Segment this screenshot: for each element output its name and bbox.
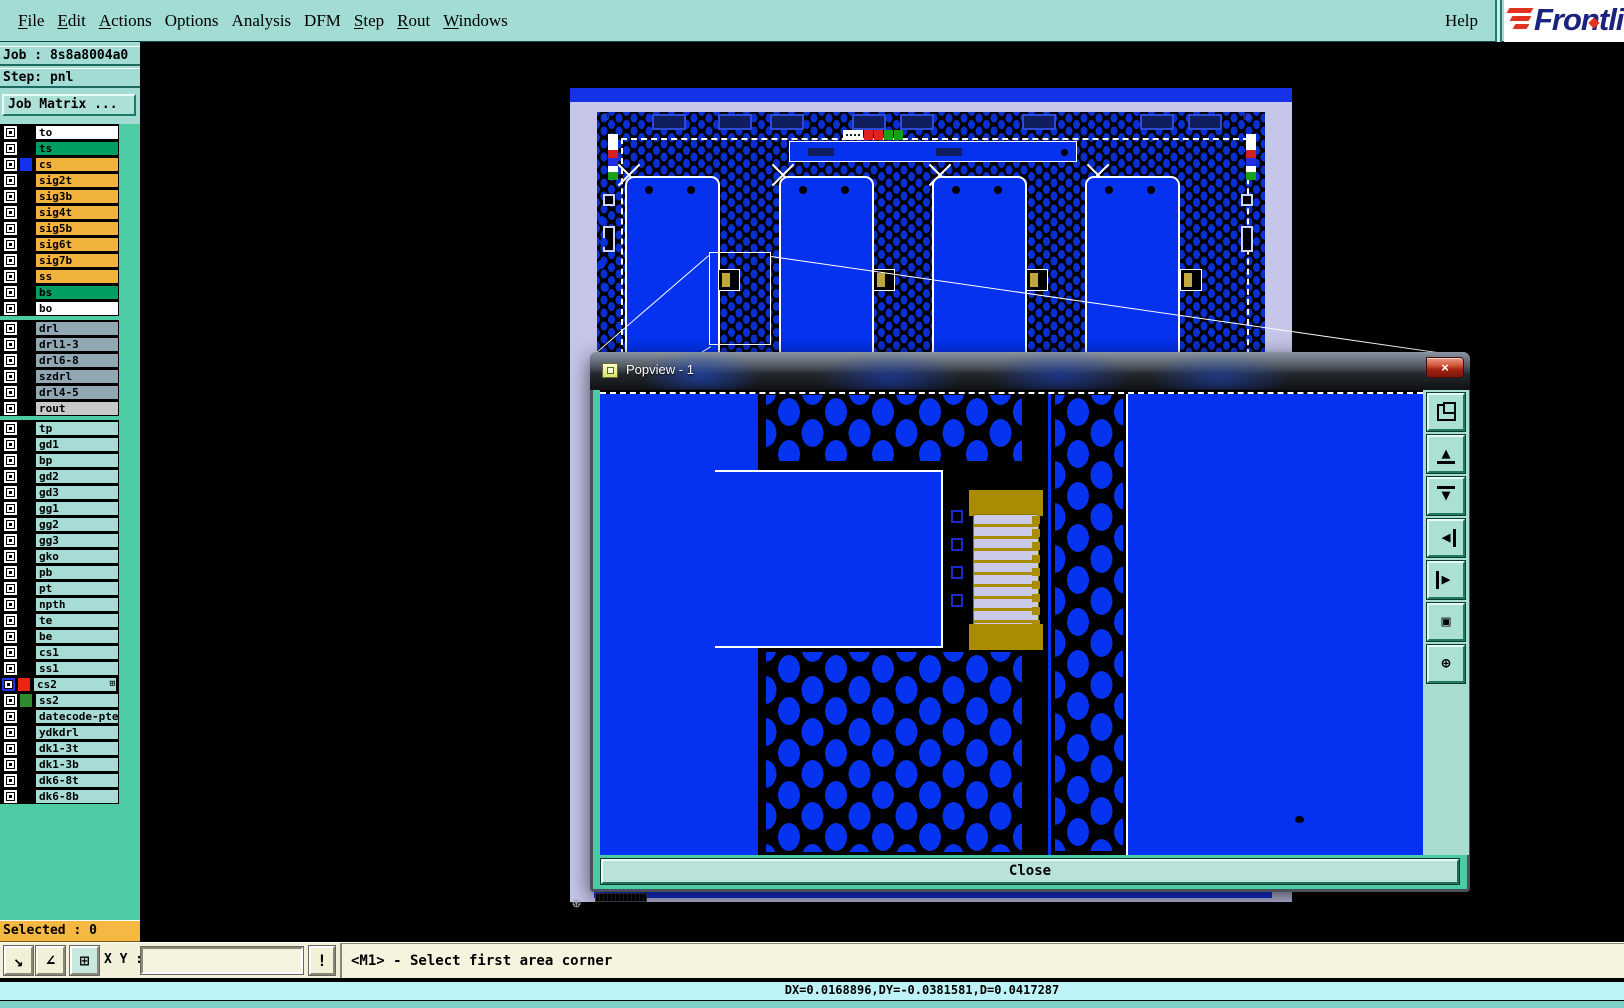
layer-checkbox-drl1-3[interactable] (4, 338, 17, 351)
layer-row-szdrl[interactable]: szdrl (0, 368, 119, 384)
bottom-edge (0, 1000, 1624, 1008)
layer-row-drl[interactable]: drl (0, 320, 119, 336)
layer-name-drl1-3[interactable]: drl1-3 (35, 337, 119, 352)
layer-name-tp[interactable]: tp (35, 421, 119, 436)
edge-mark (603, 194, 615, 206)
layer-checkbox-pt[interactable] (4, 582, 17, 595)
layer-checkbox-gd1[interactable] (4, 438, 17, 451)
layer-row-cs2[interactable]: cs2⊞ (0, 676, 119, 692)
close-icon[interactable]: × (1426, 357, 1464, 378)
popview-title: Popview - 1 (626, 362, 694, 377)
selected-count: Selected : 0 (0, 920, 140, 942)
edge-mark (1241, 194, 1253, 206)
layer-name-gg2[interactable]: gg2 (35, 517, 119, 532)
layer-row-sig5b[interactable]: sig5b (0, 220, 119, 236)
popview-footer: Close (593, 855, 1467, 889)
layer-checkbox-ts[interactable] (4, 142, 17, 155)
stray-feature (601, 283, 609, 292)
layer-name-pb[interactable]: pb (35, 565, 119, 580)
layer-name-drl6-8[interactable]: drl6-8 (35, 353, 119, 368)
layer-checkbox-te[interactable] (4, 614, 17, 627)
panel-fiducial-box (718, 114, 752, 130)
popview-dialog: Popview - 1 × ▲▼◀▶▣⊕ Close (590, 352, 1470, 892)
layer-row-npth[interactable]: npth (0, 596, 119, 612)
panel-fiducial-box (852, 114, 886, 130)
layer-checkbox-cs1[interactable] (4, 646, 17, 659)
layer-name-dk1-3b[interactable]: dk1-3b (35, 757, 119, 772)
layer-checkbox-drl[interactable] (4, 322, 17, 335)
job-label: Job : 8s8a8004a0 (0, 46, 140, 66)
layer-name-gg3[interactable]: gg3 (35, 533, 119, 548)
layer-row-bs[interactable]: bs (0, 284, 119, 300)
layer-row-drl4-5[interactable]: drl4-5 (0, 384, 119, 400)
layer-row-drl6-8[interactable]: drl6-8 (0, 352, 119, 368)
tab-outline (715, 646, 943, 648)
layer-row-cs1[interactable]: cs1 (0, 644, 119, 660)
layer-checkbox-bp[interactable] (4, 454, 17, 467)
pan-center-icon[interactable]: ⊕ (1427, 645, 1465, 683)
layer-name-gd3[interactable]: gd3 (35, 485, 119, 500)
layer-row-cs[interactable]: cs (0, 156, 119, 172)
copper-divider-line (1048, 390, 1051, 855)
layer-name-gg1[interactable]: gg1 (35, 501, 119, 516)
close-button[interactable]: Close (601, 859, 1459, 884)
layer-row-sig4t[interactable]: sig4t (0, 204, 119, 220)
layer-name-dk6-8b[interactable]: dk6-8b (35, 789, 119, 804)
layer-row-gg2[interactable]: gg2 (0, 516, 119, 532)
layer-checkbox-szdrl[interactable] (4, 370, 17, 383)
layer-row-bo[interactable]: bo (0, 300, 119, 316)
corner-target-icon: ⊕ (1243, 112, 1251, 124)
pan-left-icon[interactable]: ◀ (1427, 519, 1465, 557)
gear-icon: ⊛ (572, 894, 581, 912)
logo-stripe (1507, 8, 1534, 13)
board-tab-3 (1026, 269, 1048, 291)
xy-label: X Y : (104, 952, 143, 967)
layer-name-bp[interactable]: bp (35, 453, 119, 468)
layer-checkbox-sig5b[interactable] (4, 222, 17, 235)
layer-name-sig7b[interactable]: sig7b (35, 253, 119, 268)
popview-titlebar[interactable]: Popview - 1 × (590, 352, 1470, 390)
drill-holes-bottom (766, 652, 1022, 852)
layer-name-dk1-3t[interactable]: dk1-3t (35, 741, 119, 756)
layer-name-cs1[interactable]: cs1 (35, 645, 119, 660)
popview-toolbar: ▲▼◀▶▣⊕ (1423, 390, 1469, 855)
layer-checkbox-cs2[interactable] (2, 678, 15, 691)
layer-row-pt[interactable]: pt (0, 580, 119, 596)
menu-analysis[interactable]: Analysis (232, 11, 292, 31)
layer-row-datecode-pte[interactable]: datecode-pte (0, 708, 119, 724)
job-matrix-button[interactable]: Job Matrix ... (2, 94, 136, 116)
layer-row-tp[interactable]: tp (0, 420, 119, 436)
layer-name-rout[interactable]: rout (35, 401, 119, 416)
measurement-status: DX=0.0168896,DY=-0.0381581,D=0.0417287 (0, 981, 1624, 1000)
layer-checkbox-tp[interactable] (4, 422, 17, 435)
layer-name-npth[interactable]: npth (35, 597, 119, 612)
test-coupon-bar (789, 141, 1077, 162)
layer-name-sig4t[interactable]: sig4t (35, 205, 119, 220)
popview-window-icon (602, 363, 618, 378)
layer-row-gd2[interactable]: gd2 (0, 468, 119, 484)
sidebar: Job : 8s8a8004a0 Step: pnl Job Matrix ..… (0, 42, 140, 942)
trace-stub (951, 538, 963, 551)
layer-name-drl[interactable]: drl (35, 321, 119, 336)
panel-fiducial-box (770, 114, 804, 130)
logo-stripe (1510, 16, 1532, 21)
layer-checkbox-gg1[interactable] (4, 502, 17, 515)
layer-checkbox-sig4t[interactable] (4, 206, 17, 219)
layer-name-szdrl[interactable]: szdrl (35, 369, 119, 384)
menu-rout[interactable]: Rout (397, 11, 430, 31)
layer-checkbox-sig2t[interactable] (4, 174, 17, 187)
layer-name-te[interactable]: te (35, 613, 119, 628)
layer-row-dk6-8b[interactable]: dk6-8b (0, 788, 119, 804)
layer-checkbox-bs[interactable] (4, 286, 17, 299)
stray-feature (598, 216, 606, 225)
logo-stripe (1513, 24, 1530, 29)
edge-mark (1241, 226, 1253, 252)
trace-stub (951, 594, 963, 607)
layer-checkbox-dk1-3b[interactable] (4, 758, 17, 771)
layer-name-gd2[interactable]: gd2 (35, 469, 119, 484)
layer-row-dk1-3t[interactable]: dk1-3t (0, 740, 119, 756)
window-corner-hatch (595, 893, 647, 902)
layer-row-ss[interactable]: ss (0, 268, 119, 284)
layer-row-to[interactable]: to (0, 124, 119, 140)
menu-file[interactable]: File (18, 11, 44, 31)
layer-name-to[interactable]: to (35, 125, 119, 140)
layer-row-te[interactable]: te (0, 612, 119, 628)
layer-row-gd3[interactable]: gd3 (0, 484, 119, 500)
zoom-fit-icon[interactable]: ▣ (1427, 603, 1465, 641)
corner-target-icon: ⊕ (602, 112, 610, 124)
layer-row-gg3[interactable]: gg3 (0, 532, 119, 548)
layer-checkbox-ss2[interactable] (4, 694, 17, 707)
menu-edit[interactable]: Edit (57, 11, 85, 31)
layer-name-bs[interactable]: bs (35, 285, 119, 300)
registration-marks (843, 130, 903, 140)
panel-fiducial-box (1188, 114, 1222, 130)
prompt-message: <M1> - Select first area corner (340, 943, 1624, 978)
layer-checkbox-be[interactable] (4, 630, 17, 643)
panel-fiducial-box (1022, 114, 1056, 130)
layer-row-ss2[interactable]: ss2 (0, 692, 119, 708)
menu-help[interactable]: Help (1445, 11, 1478, 31)
board-edge-line (1126, 390, 1128, 855)
layer-name-datecode-pte[interactable]: datecode-pte (35, 709, 119, 724)
layer-name-be[interactable]: be (35, 629, 119, 644)
trace-stub (951, 510, 963, 523)
stray-feature (597, 260, 605, 269)
step-label: Step: pnl (0, 68, 140, 88)
layer-row-ts[interactable]: ts (0, 140, 119, 156)
layer-name-sig6t[interactable]: sig6t (35, 237, 119, 252)
layer-row-gd1[interactable]: gd1 (0, 436, 119, 452)
menu-divider (1495, 0, 1502, 42)
layer-checkbox-gg3[interactable] (4, 534, 17, 547)
zoom-area-icon[interactable]: ↘ (4, 946, 33, 975)
layer-name-cs[interactable]: cs (35, 157, 119, 172)
layer-row-bp[interactable]: bp (0, 452, 119, 468)
layer-checkbox-drl4-5[interactable] (4, 386, 17, 399)
layer-checkbox-bo[interactable] (4, 302, 17, 315)
trace-stub (951, 566, 963, 579)
layer-checkbox-gg2[interactable] (4, 518, 17, 531)
board-tab-zoomed (600, 472, 941, 646)
layer-name-dk6-8t[interactable]: dk6-8t (35, 773, 119, 788)
menu-bar: FileEditActionsOptionsAnalysisDFMStepRou… (0, 0, 1624, 42)
layer-name-sig3b[interactable]: sig3b (35, 189, 119, 204)
layer-color-swatch[interactable] (20, 158, 32, 171)
layer-list: totscssig2tsig3bsig4tsig5bsig6tsig7bssbs… (0, 124, 119, 804)
layer-checkbox-sig6t[interactable] (4, 238, 17, 251)
layer-row-sig7b[interactable]: sig7b (0, 252, 119, 268)
frontline-logo: Frontli (1504, 0, 1624, 42)
layer-checkbox-dk6-8t[interactable] (4, 774, 17, 787)
layer-row-gko[interactable]: gko (0, 548, 119, 564)
layer-grid-icon: ⊞ (110, 679, 115, 690)
layer-row-gg1[interactable]: gg1 (0, 500, 119, 516)
command-toolbar: X Y : ! <M1> - Select first area corner … (0, 942, 1624, 978)
menu-items: FileEditActionsOptionsAnalysisDFMStepRou… (18, 0, 508, 42)
layer-checkbox-drl6-8[interactable] (4, 354, 17, 367)
tile-windows-icon[interactable]: ⊞ (70, 946, 99, 975)
xy-coordinate-input[interactable] (141, 947, 303, 974)
panel-fiducial-box (1140, 114, 1174, 130)
stray-feature (600, 238, 608, 247)
layer-name-ss1[interactable]: ss1 (35, 661, 119, 676)
zoom-source-rect (709, 252, 771, 345)
measure-angle-icon[interactable]: ∠ (36, 946, 65, 975)
layer-row-ydkdrl[interactable]: ydkdrl (0, 724, 119, 740)
layer-row-sig6t[interactable]: sig6t (0, 236, 119, 252)
layer-name-ts[interactable]: ts (35, 141, 119, 156)
layer-name-gko[interactable]: gko (35, 549, 119, 564)
right-edge-coupon (1246, 134, 1256, 180)
menu-options[interactable]: Options (165, 11, 219, 31)
layer-row-sig2t[interactable]: sig2t (0, 172, 119, 188)
zoom-area-dashed-border (600, 390, 1423, 394)
layer-checkbox-gko[interactable] (4, 550, 17, 563)
layer-name-bo[interactable]: bo (35, 301, 119, 316)
layer-checkbox-ss[interactable] (4, 270, 17, 283)
duplicate-view-icon[interactable] (1427, 393, 1465, 431)
board-tab-4 (1180, 269, 1202, 291)
layer-checkbox-gd2[interactable] (4, 470, 17, 483)
layer-checkbox-datecode-pte[interactable] (4, 710, 17, 723)
layer-checkbox-pb[interactable] (4, 566, 17, 579)
layer-color-swatch[interactable] (20, 694, 32, 707)
drill-holes-column (1055, 395, 1123, 851)
layer-checkbox-ydkdrl[interactable] (4, 726, 17, 739)
command-warning-button[interactable]: ! (309, 946, 335, 975)
layer-checkbox-dk6-8b[interactable] (4, 790, 17, 803)
layer-name-drl4-5[interactable]: drl4-5 (35, 385, 119, 400)
layer-checkbox-ss1[interactable] (4, 662, 17, 675)
popview-canvas[interactable] (600, 390, 1423, 855)
connector-fingers (973, 514, 1039, 626)
layer-row-be[interactable]: be (0, 628, 119, 644)
drill-dot (1295, 816, 1304, 823)
layer-row-ss1[interactable]: ss1 (0, 660, 119, 676)
layer-checkbox-sig7b[interactable] (4, 254, 17, 267)
layer-checkbox-cs[interactable] (4, 158, 17, 171)
pan-down-icon[interactable]: ▼ (1427, 477, 1465, 515)
connector-cap (969, 490, 1043, 516)
connector-cap (969, 624, 1043, 650)
layer-name-sig5b[interactable]: sig5b (35, 221, 119, 236)
layer-name-cs2[interactable]: cs2⊞ (33, 677, 117, 692)
layer-checkbox-sig3b[interactable] (4, 190, 17, 203)
pan-right-icon[interactable]: ▶ (1427, 561, 1465, 599)
layer-name-ss[interactable]: ss (35, 269, 119, 284)
layer-name-ss2[interactable]: ss2 (35, 693, 119, 708)
panel-fiducial-box (652, 114, 686, 130)
layer-checkbox-npth[interactable] (4, 598, 17, 611)
menu-step[interactable]: Step (354, 11, 384, 31)
layer-checkbox-rout[interactable] (4, 402, 17, 415)
layer-checkbox-to[interactable] (4, 126, 17, 139)
layer-row-drl1-3[interactable]: drl1-3 (0, 336, 119, 352)
drill-holes-top (766, 395, 1022, 461)
layer-name-gd1[interactable]: gd1 (35, 437, 119, 452)
layer-color-swatch[interactable] (18, 678, 30, 691)
layer-row-dk1-3b[interactable]: dk1-3b (0, 756, 119, 772)
tab-outline (715, 470, 943, 472)
panel-fiducial-box (900, 114, 934, 130)
layer-row-dk6-8t[interactable]: dk6-8t (0, 772, 119, 788)
layer-name-sig2t[interactable]: sig2t (35, 173, 119, 188)
layer-row-rout[interactable]: rout (0, 400, 119, 416)
connector-pads (1032, 516, 1040, 624)
menu-actions[interactable]: Actions (99, 11, 152, 31)
layer-checkbox-dk1-3t[interactable] (4, 742, 17, 755)
menu-windows[interactable]: Windows (443, 11, 508, 31)
gold-finger-connector (969, 490, 1043, 650)
logo-text: Frontli (1534, 2, 1623, 38)
pan-up-icon[interactable]: ▲ (1427, 435, 1465, 473)
menu-dfm[interactable]: DFM (304, 11, 341, 31)
layer-name-pt[interactable]: pt (35, 581, 119, 596)
layer-row-sig3b[interactable]: sig3b (0, 188, 119, 204)
tab-outline (941, 470, 943, 648)
layer-checkbox-gd3[interactable] (4, 486, 17, 499)
layer-row-pb[interactable]: pb (0, 564, 119, 580)
layer-name-ydkdrl[interactable]: ydkdrl (35, 725, 119, 740)
